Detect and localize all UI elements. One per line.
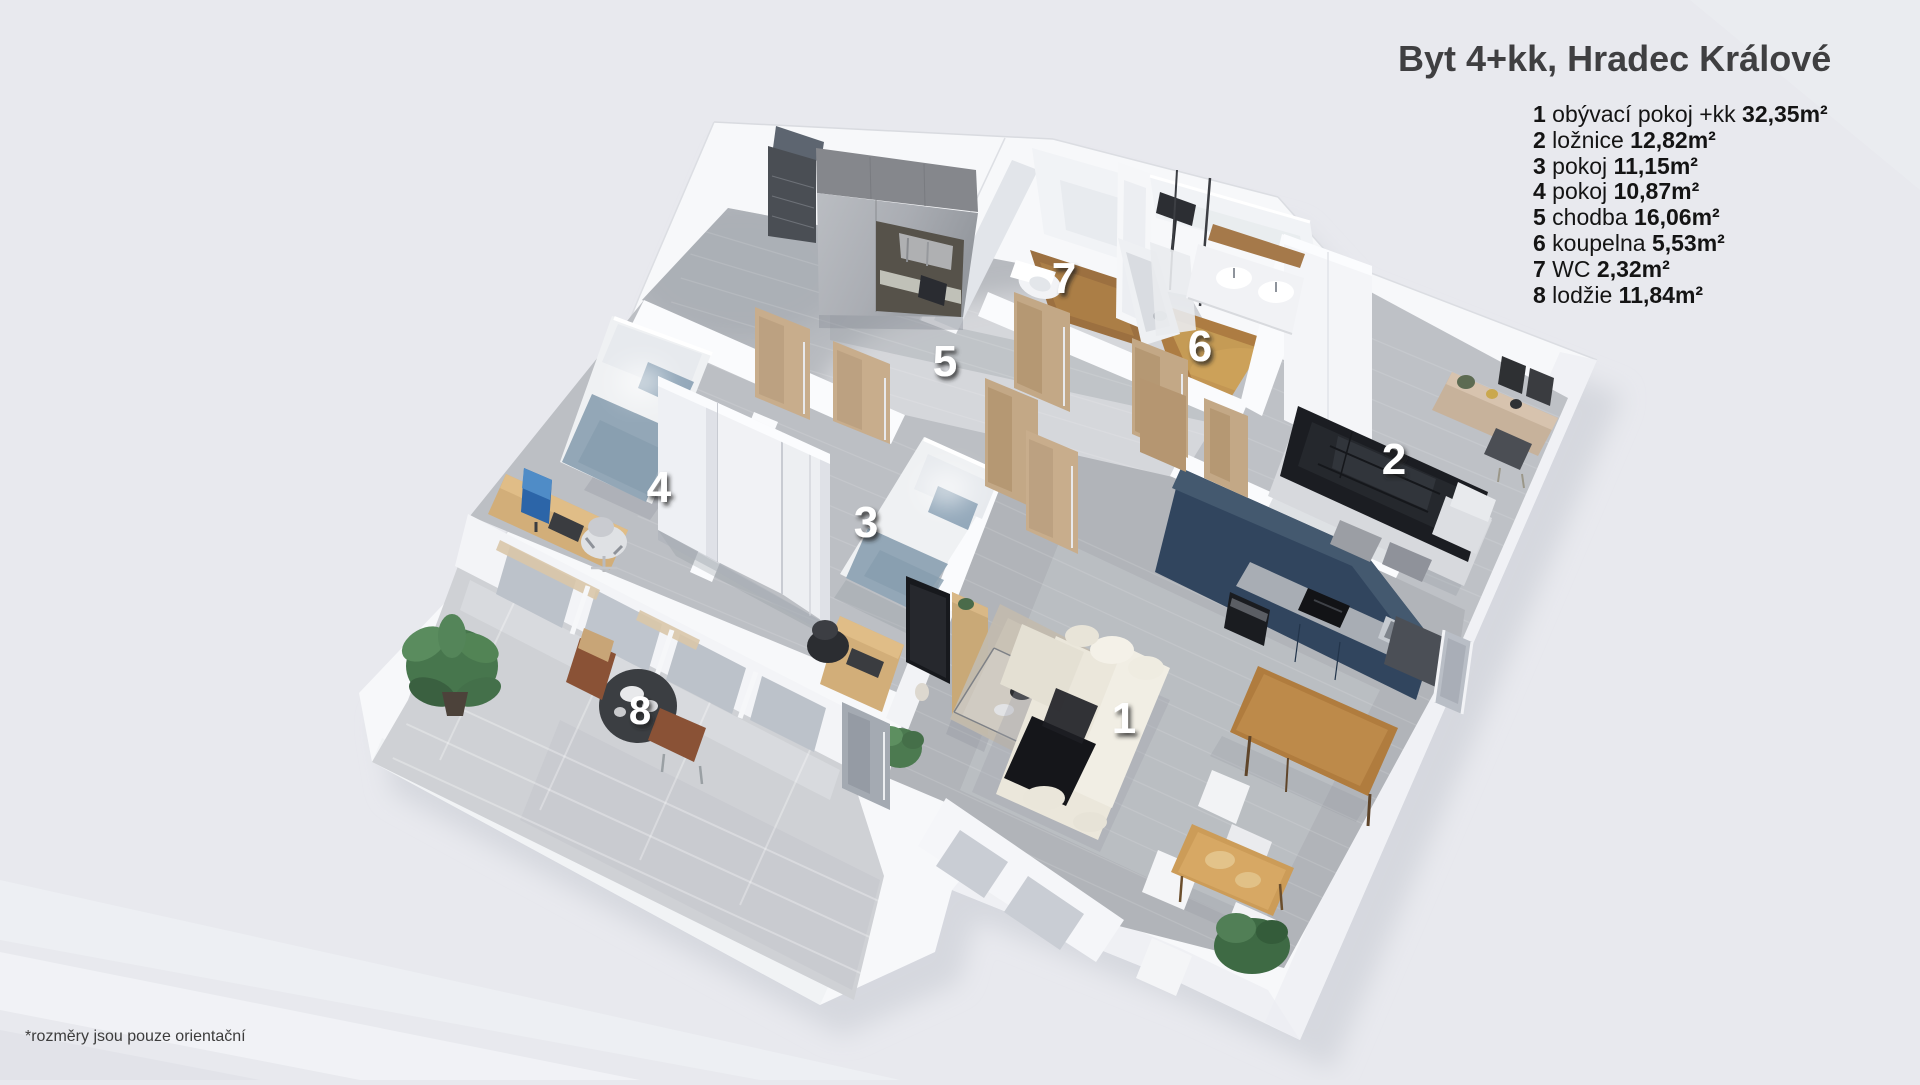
svg-text:8: 8 (629, 689, 651, 733)
svg-text:6: 6 (1188, 322, 1212, 371)
svg-text:2: 2 (1382, 435, 1406, 484)
svg-text:1: 1 (1112, 694, 1136, 743)
svg-text:5: 5 (933, 337, 957, 386)
svg-text:7: 7 (1052, 254, 1076, 303)
svg-text:4: 4 (647, 463, 672, 512)
svg-text:3: 3 (854, 498, 878, 547)
